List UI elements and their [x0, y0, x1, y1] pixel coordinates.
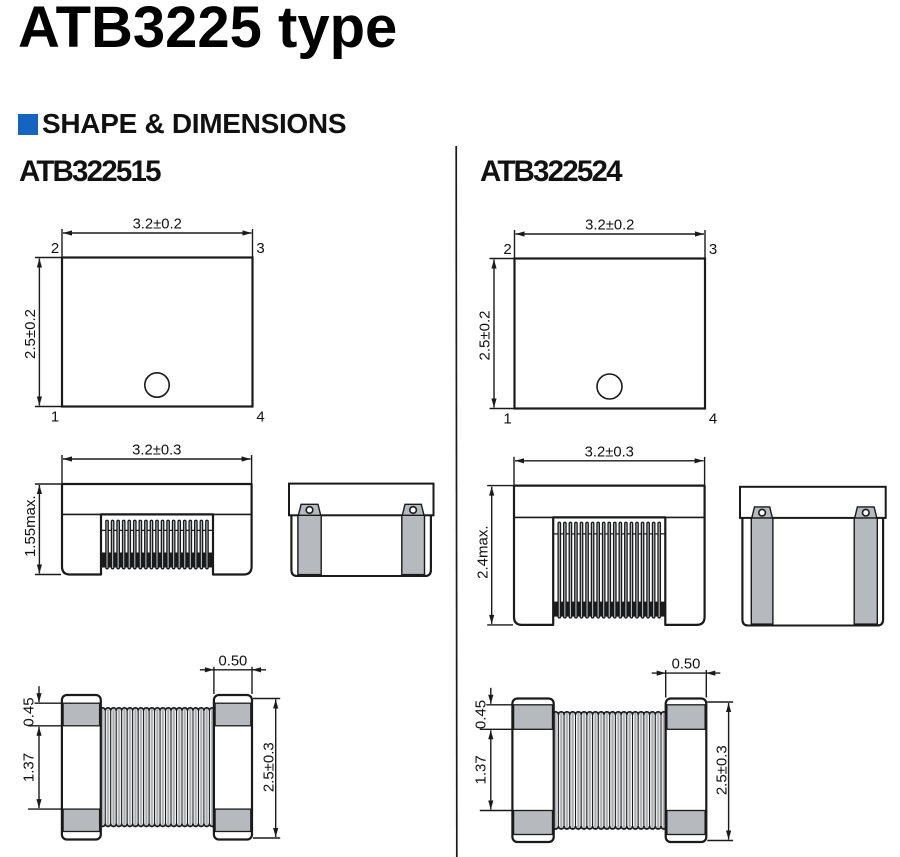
- svg-text:1.37: 1.37: [21, 753, 38, 782]
- svg-text:2.5±0.3: 2.5±0.3: [713, 745, 730, 795]
- svg-text:2: 2: [51, 240, 59, 257]
- svg-text:3.2±0.3: 3.2±0.3: [132, 443, 181, 459]
- svg-text:2.4max.: 2.4max.: [474, 526, 491, 579]
- svg-text:0.50: 0.50: [672, 657, 701, 673]
- svg-text:4: 4: [709, 411, 717, 428]
- svg-text:2.5±0.3: 2.5±0.3: [260, 742, 277, 792]
- svg-text:1: 1: [51, 409, 59, 426]
- svg-text:4: 4: [256, 409, 264, 426]
- svg-text:2.5±0.2: 2.5±0.2: [22, 309, 39, 359]
- svg-text:1.37: 1.37: [472, 755, 489, 784]
- svg-text:1.55max.: 1.55max.: [22, 495, 39, 557]
- svg-text:2.5±0.2: 2.5±0.2: [477, 311, 494, 361]
- svg-text:0.50: 0.50: [218, 653, 247, 669]
- svg-text:3.2±0.3: 3.2±0.3: [585, 444, 634, 460]
- svg-text:0.45: 0.45: [21, 697, 38, 726]
- svg-text:3: 3: [256, 240, 264, 257]
- svg-text:3.2±0.2: 3.2±0.2: [585, 218, 634, 234]
- svg-text:2: 2: [503, 241, 511, 258]
- svg-text:3.2±0.2: 3.2±0.2: [133, 217, 182, 233]
- svg-text:1: 1: [503, 411, 511, 428]
- svg-text:0.45: 0.45: [472, 700, 489, 729]
- svg-text:3: 3: [709, 241, 717, 258]
